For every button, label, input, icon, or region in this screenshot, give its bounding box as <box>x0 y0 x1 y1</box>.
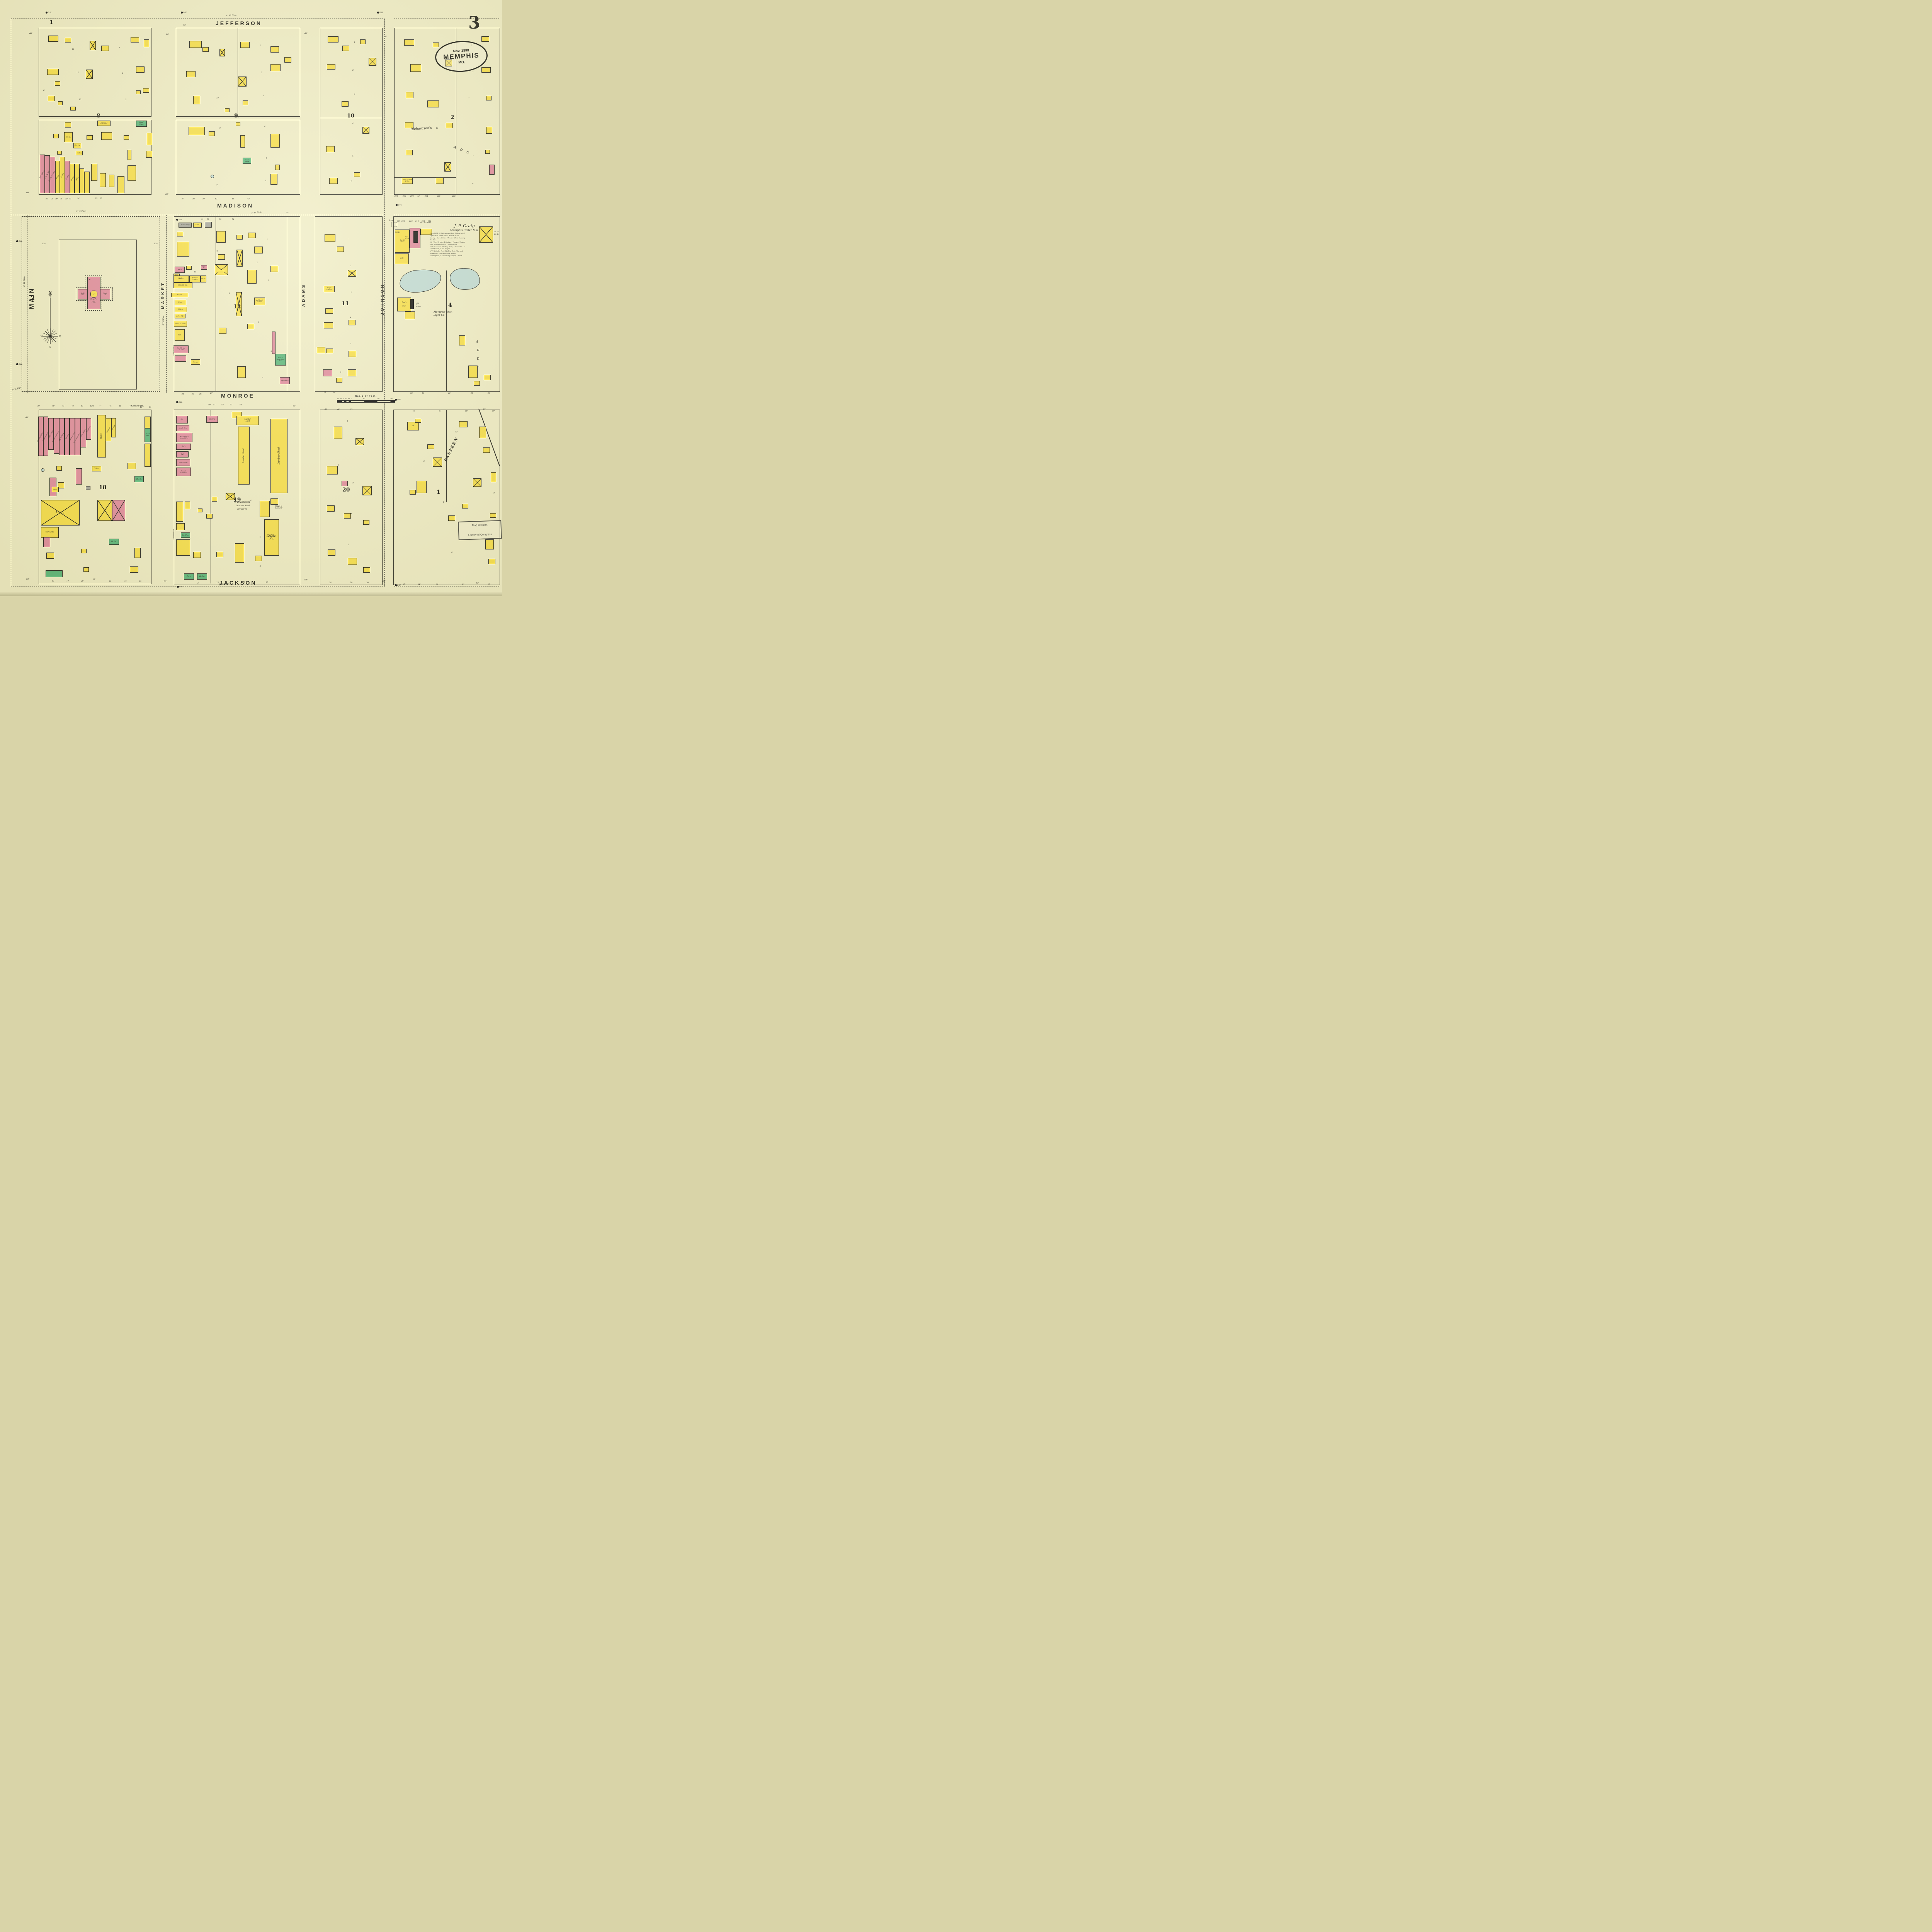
building <box>327 505 335 512</box>
building-label: Lunch R'm <box>179 427 187 429</box>
building <box>216 552 223 557</box>
building-label: Hand Prnt'g 2d. Gro. <box>177 348 185 351</box>
compass-rose: N ⚜ W E S <box>40 291 62 352</box>
lot-number: 39 <box>37 405 40 407</box>
building-label: Bl.Sm. <box>199 576 205 578</box>
lot-number: 20 <box>81 580 83 582</box>
water-pipe-dashed-line <box>394 215 499 215</box>
building <box>48 36 58 42</box>
building-label: Livery. <box>56 511 65 514</box>
building-label: Jew'ly <box>70 176 74 181</box>
building <box>323 369 332 376</box>
lot-number: 5 <box>270 351 272 353</box>
block-number: 18 <box>99 485 106 491</box>
lot-number: 6 <box>351 181 352 183</box>
building <box>348 558 357 565</box>
building-label: Off. 2d Bank. <box>59 432 65 441</box>
building: Furn'e <box>65 161 70 193</box>
street-width-label: 60' <box>304 579 308 581</box>
building-label: Gro. <box>196 224 199 226</box>
building: Bill'd Hall & Lunch R'm <box>176 433 192 442</box>
building-label: Baker <box>179 309 184 311</box>
lot-number: 1 <box>260 45 261 47</box>
block-number: 8 <box>97 113 100 119</box>
lot-number: 5 <box>352 155 354 157</box>
lot-number: 12 <box>455 431 457 433</box>
street-name-johnson: JOHNSON <box>380 284 385 315</box>
building-label: Hides. <box>179 278 184 280</box>
building: Off. <box>395 253 409 264</box>
building-label: Poultry Ho. <box>178 284 187 286</box>
building-label: W.R'm <box>77 152 82 154</box>
lot-number: 32 <box>418 583 420 585</box>
building <box>327 466 338 474</box>
lot-number: 4 <box>352 123 354 125</box>
hydrant-label: D.H. <box>397 399 401 401</box>
water-pipe-dashed-line <box>11 587 383 587</box>
building: Bl.Sm. <box>134 476 144 482</box>
hydrant-dot-icon <box>176 401 178 403</box>
paper-edge <box>0 592 502 596</box>
lot-number: 41 <box>232 198 234 200</box>
building-label: Tin Shop <box>182 534 189 536</box>
building <box>247 270 257 284</box>
lot-number: 54 <box>232 219 234 221</box>
lot-number: 29 <box>51 198 53 200</box>
building <box>136 66 145 73</box>
water-pipe-label: 8" W. Pipe. <box>12 386 22 392</box>
building-label: Harness <box>65 434 70 440</box>
lot-number: 12' <box>93 579 95 581</box>
lot-number: 4 <box>264 126 265 128</box>
building-label: Sal's <box>182 446 185 448</box>
building: D.G. & Clo. <box>81 418 86 447</box>
lot-number: 43½ <box>90 405 94 407</box>
building <box>186 71 196 77</box>
building <box>81 549 87 553</box>
building: Bl.Sm. <box>197 573 207 580</box>
lot-number: 6 <box>340 372 341 374</box>
building: Ag'l Imp'ls & W.Ho. <box>254 298 265 305</box>
lot-number: 42 <box>247 198 250 200</box>
hydrant-dot-icon <box>16 363 18 365</box>
building-label: Dyn's Eng. <box>402 302 406 307</box>
map-annotation: Ir.Ch. on Bk.Base. <box>416 303 421 308</box>
building <box>202 47 209 52</box>
building-label: Meat <box>178 269 182 271</box>
lot-number: 2 <box>338 464 339 466</box>
building <box>413 231 418 243</box>
building <box>46 553 54 559</box>
map-annotation: Lights: Elec. Heat: Stoves. <box>266 534 275 537</box>
lot-number: 62 <box>488 393 490 395</box>
lot-number: 44 <box>99 405 102 407</box>
building-label: Mill <box>400 240 405 243</box>
building <box>117 176 124 193</box>
building: Carp'y <box>206 416 218 423</box>
building <box>131 37 139 43</box>
loc-stamp-line1: Map Division <box>460 523 499 527</box>
building-label: Smo. Ho. <box>202 266 206 269</box>
building: Furn'e <box>73 143 81 148</box>
lot-number: 1 <box>267 239 268 241</box>
building <box>284 57 291 63</box>
building: Poultry & Produce. <box>189 276 201 282</box>
water-pipe-dashed-line <box>11 215 383 215</box>
lot-number: 4 <box>258 321 259 323</box>
building-label: Ag'l Imp'ls <box>281 380 288 381</box>
building <box>247 324 254 329</box>
building: Wall Paper <box>111 418 116 437</box>
lot-number: 3 <box>125 99 126 101</box>
building <box>176 539 190 556</box>
street-width-label: 60' <box>26 417 29 419</box>
block-number: 4 <box>448 302 452 308</box>
building <box>206 514 213 519</box>
building <box>100 173 106 187</box>
building <box>483 447 490 453</box>
street-name-madison: MADISON <box>217 202 253 209</box>
building-label: (Tin Cl.) <box>100 122 107 124</box>
building <box>134 548 141 558</box>
lot-number: 10 <box>436 128 438 129</box>
street-width-label: 50' <box>384 36 387 38</box>
court-house: Vault 1st. Vault 1st. 2 3 Court Ho. <box>77 275 111 311</box>
building: Carp' Shop <box>136 121 147 127</box>
lot-number: 3 <box>263 95 264 97</box>
lot-number: 5 <box>260 536 261 538</box>
lot-number: 2 <box>261 72 262 74</box>
water-pipe-label: 4" W. Pipe. <box>251 211 262 214</box>
block-number: 10 <box>347 113 354 119</box>
building <box>235 543 244 563</box>
building-label: Hotel 2d. <box>86 425 91 432</box>
building: Meat <box>55 161 60 193</box>
building <box>355 438 364 445</box>
street-width-label: 60' <box>164 580 167 583</box>
building-label: Meat <box>56 175 60 179</box>
building: Opera Ho. <box>264 519 279 556</box>
building: Flour & Grain W. Ho. <box>402 178 413 184</box>
building <box>90 41 96 50</box>
water-pipe-dashed-line <box>394 587 499 587</box>
lot-number: 19 <box>66 580 69 582</box>
scale-tick: 0 <box>351 398 352 400</box>
lot-number: 6 <box>260 566 261 568</box>
building <box>189 127 205 135</box>
building-label: Furn'e <box>60 172 65 178</box>
building <box>236 235 243 240</box>
building: Sal's <box>176 444 191 450</box>
lot-number: 39 <box>202 198 205 200</box>
building-label: Jwlry Off. <box>177 315 184 317</box>
building: Furn'e <box>60 157 65 193</box>
building-label: Negro Church. <box>327 287 332 291</box>
map-annotation: A <box>476 340 478 344</box>
building <box>317 347 325 353</box>
building: Hides. <box>173 276 189 282</box>
lot-number: 43 <box>81 405 83 407</box>
building <box>146 151 152 158</box>
building: Negro Church. <box>324 286 335 292</box>
building-label: Lumber Shed <box>277 447 280 465</box>
street-width-label: 100' <box>42 243 46 245</box>
building-label: Bl.Sm. & Repair Shop B'as. <box>277 357 284 362</box>
building <box>255 556 262 561</box>
building <box>328 36 338 43</box>
building <box>112 500 125 521</box>
lot-number: 4 <box>350 317 351 319</box>
lot-number: 5 <box>266 158 267 160</box>
building <box>410 299 414 309</box>
block-number: 11 <box>342 301 349 307</box>
building: Mill'y <box>75 164 80 193</box>
building: Hotel 2d. <box>106 418 111 441</box>
building: Baker <box>175 307 187 312</box>
building <box>101 132 112 140</box>
hydrant-label: D.H. <box>19 364 22 366</box>
lot-line <box>238 28 238 116</box>
building-label: Carr. R'm. <box>46 531 54 533</box>
building: Drugs Books &c <box>43 417 48 456</box>
lot-number: 53 <box>230 404 232 406</box>
lot-number: 45 <box>109 405 112 407</box>
hydrant-dot-icon <box>396 204 398 206</box>
building-label: Bl.Sm. <box>136 478 142 480</box>
building-label: China & Chamb'r <box>180 470 187 473</box>
building <box>481 67 491 73</box>
building: D <box>407 422 419 430</box>
building <box>270 64 281 71</box>
lot-number: 27 <box>266 582 268 583</box>
building: Rest. <box>175 300 186 305</box>
lot-number: 202 <box>403 196 406 197</box>
building <box>236 122 240 126</box>
building <box>348 270 356 277</box>
hydrant-label: D.H. <box>183 12 187 14</box>
building <box>218 254 225 260</box>
building <box>205 222 212 228</box>
hydrant-label: D.H. <box>179 401 182 403</box>
building <box>144 39 149 47</box>
building: Tin Shop <box>181 532 190 538</box>
block-outline <box>320 28 383 195</box>
scale-tick: 100 <box>376 398 379 400</box>
building <box>486 96 492 100</box>
street-width-label: 60' <box>293 405 296 407</box>
lot-number: 207 <box>397 221 400 223</box>
building <box>91 164 97 181</box>
building <box>459 335 465 345</box>
building <box>326 349 333 353</box>
craig-subtitle: Memphis Roller Mill. <box>430 229 499 232</box>
building: Sal. <box>176 451 189 457</box>
lot-number: 210 <box>415 221 419 223</box>
building-label: Ice Ho. <box>201 278 206 280</box>
scale-bar-title: Scale of Feet. <box>337 395 395 398</box>
building <box>58 101 63 105</box>
hydrant-dot-icon <box>395 584 397 586</box>
building <box>369 58 376 66</box>
building <box>486 127 492 134</box>
craig-detail-line: Scalping Reel, 1 Garden City Scalper, 1 … <box>430 255 499 257</box>
hydrant-dot-icon <box>16 240 18 242</box>
building <box>236 250 243 267</box>
fleur-de-lis-icon: ⚜ <box>48 292 53 298</box>
building-label: Vac. <box>178 334 182 336</box>
lot-number: 34 <box>462 583 464 585</box>
building: Hotel <box>97 415 106 457</box>
building: Harness <box>65 418 70 455</box>
hydrant-label: D.H. <box>379 12 383 14</box>
lot-number: 49 <box>149 406 151 408</box>
street-width-label: 50' <box>286 212 289 214</box>
building <box>328 549 335 556</box>
building <box>209 131 215 136</box>
building <box>327 64 335 70</box>
building <box>83 567 89 572</box>
lot-number: 22 <box>124 581 127 583</box>
building <box>272 332 276 354</box>
street-width-label: 60' <box>166 33 169 36</box>
building <box>177 232 183 236</box>
building: Off. 2d Gro. <box>48 418 54 450</box>
building <box>176 502 183 522</box>
building <box>324 322 333 328</box>
building <box>329 178 338 184</box>
building <box>55 81 60 86</box>
water-pipe-label: 6" W. Pipe. <box>23 276 26 287</box>
lot-number: 63 <box>325 409 327 411</box>
lot-number: 42 <box>71 405 74 407</box>
building <box>270 266 278 272</box>
building <box>433 457 442 467</box>
building <box>325 234 335 242</box>
building: Dyn's Eng. <box>397 298 411 311</box>
street-width-label: 12' <box>183 24 186 26</box>
building: Bakery & Conf. <box>70 418 75 455</box>
building-label: Lumber Shed <box>243 448 245 463</box>
building: Carp. <box>184 573 194 580</box>
building <box>484 375 491 380</box>
lot-number: 11 <box>216 250 218 252</box>
lot-number: 33 <box>436 583 438 585</box>
building <box>481 36 489 42</box>
building <box>473 478 481 487</box>
building <box>101 46 109 51</box>
lot-line <box>216 216 216 391</box>
block-number: 2 <box>451 114 454 121</box>
lot-number: 3 <box>352 482 354 484</box>
lot-number: 1 <box>354 42 355 44</box>
building: Sal. <box>176 416 188 423</box>
water-pipe-dashed-line <box>11 19 383 19</box>
building <box>446 123 453 128</box>
lot-number: 12' <box>417 196 420 197</box>
lot-number: 4 <box>468 97 469 99</box>
compass-south-label: S <box>49 346 51 349</box>
lot-number: 6 <box>265 180 266 182</box>
building: Clo. B&S. Tailor 2d. <box>50 157 55 193</box>
lot-number: 3 <box>493 492 495 494</box>
building <box>433 43 439 47</box>
scale-tick: 40 <box>340 398 342 400</box>
building <box>349 351 356 357</box>
building: Tailor <box>92 466 101 471</box>
building: W.Cl. <box>52 487 59 492</box>
scale-bar-ticks: 5040302010050100150 <box>337 398 395 400</box>
map-annotation: 300,000 Ft. <box>237 509 247 510</box>
building <box>124 135 129 140</box>
building <box>406 92 413 98</box>
lot-number: 50 <box>208 404 211 406</box>
block-number: 20 <box>342 487 350 493</box>
lot-number: 4 <box>250 500 252 502</box>
lot-number: 54 <box>240 404 242 406</box>
building <box>417 481 427 493</box>
building <box>128 165 136 181</box>
lot-number: 51 <box>213 404 216 406</box>
lot-number: 3 <box>351 291 352 293</box>
building-label: Hotel 2d. <box>106 426 111 433</box>
building <box>219 49 225 56</box>
lot-number: 32 <box>65 198 68 200</box>
building <box>43 537 50 547</box>
hydrant-dot-icon <box>176 219 178 221</box>
lot-number: 12' <box>236 117 239 119</box>
lot-number: 2 <box>423 461 425 463</box>
building <box>479 427 486 438</box>
lot-number: 12 <box>72 49 74 51</box>
lot-number: 41 <box>62 405 65 407</box>
lot-number: 4 <box>494 517 495 519</box>
building-label: Off. 2d Gro. <box>48 430 54 438</box>
building-label: Stor'ge <box>193 361 198 363</box>
lot-number: 35 <box>95 198 97 200</box>
lot-number: 3 <box>354 94 355 95</box>
building-label: D.G. & Clo. <box>81 429 87 437</box>
building <box>275 165 280 170</box>
building-label: Photo. Gall'y <box>180 224 189 226</box>
lot-number: 10 <box>194 271 196 273</box>
building-label: Furn'e <box>65 174 70 180</box>
building <box>53 134 59 138</box>
building <box>489 165 495 175</box>
building <box>147 133 152 145</box>
building <box>189 41 202 48</box>
lot-number: 24 <box>182 393 184 395</box>
scale-tick: 20 <box>345 398 347 400</box>
building <box>270 174 277 185</box>
building <box>218 270 224 274</box>
building <box>193 96 200 104</box>
building <box>185 502 190 509</box>
building-label: Barber. <box>177 294 183 296</box>
street-name-jefferson: JEFFERSON <box>216 20 262 26</box>
lot-number: 6 <box>262 377 263 379</box>
building <box>427 100 439 107</box>
building <box>491 472 496 482</box>
building-label: Sal. <box>181 454 184 456</box>
lot-number: 27 <box>210 393 213 395</box>
building: Carp' Shop <box>243 158 251 164</box>
building-label: Carp' Shop <box>139 122 144 126</box>
lot-number: 35 <box>324 391 326 393</box>
building <box>41 468 44 472</box>
scale-tick: 30 <box>342 398 344 400</box>
street-width-label: 40' <box>383 580 386 583</box>
lot-number: 29 <box>350 582 352 584</box>
